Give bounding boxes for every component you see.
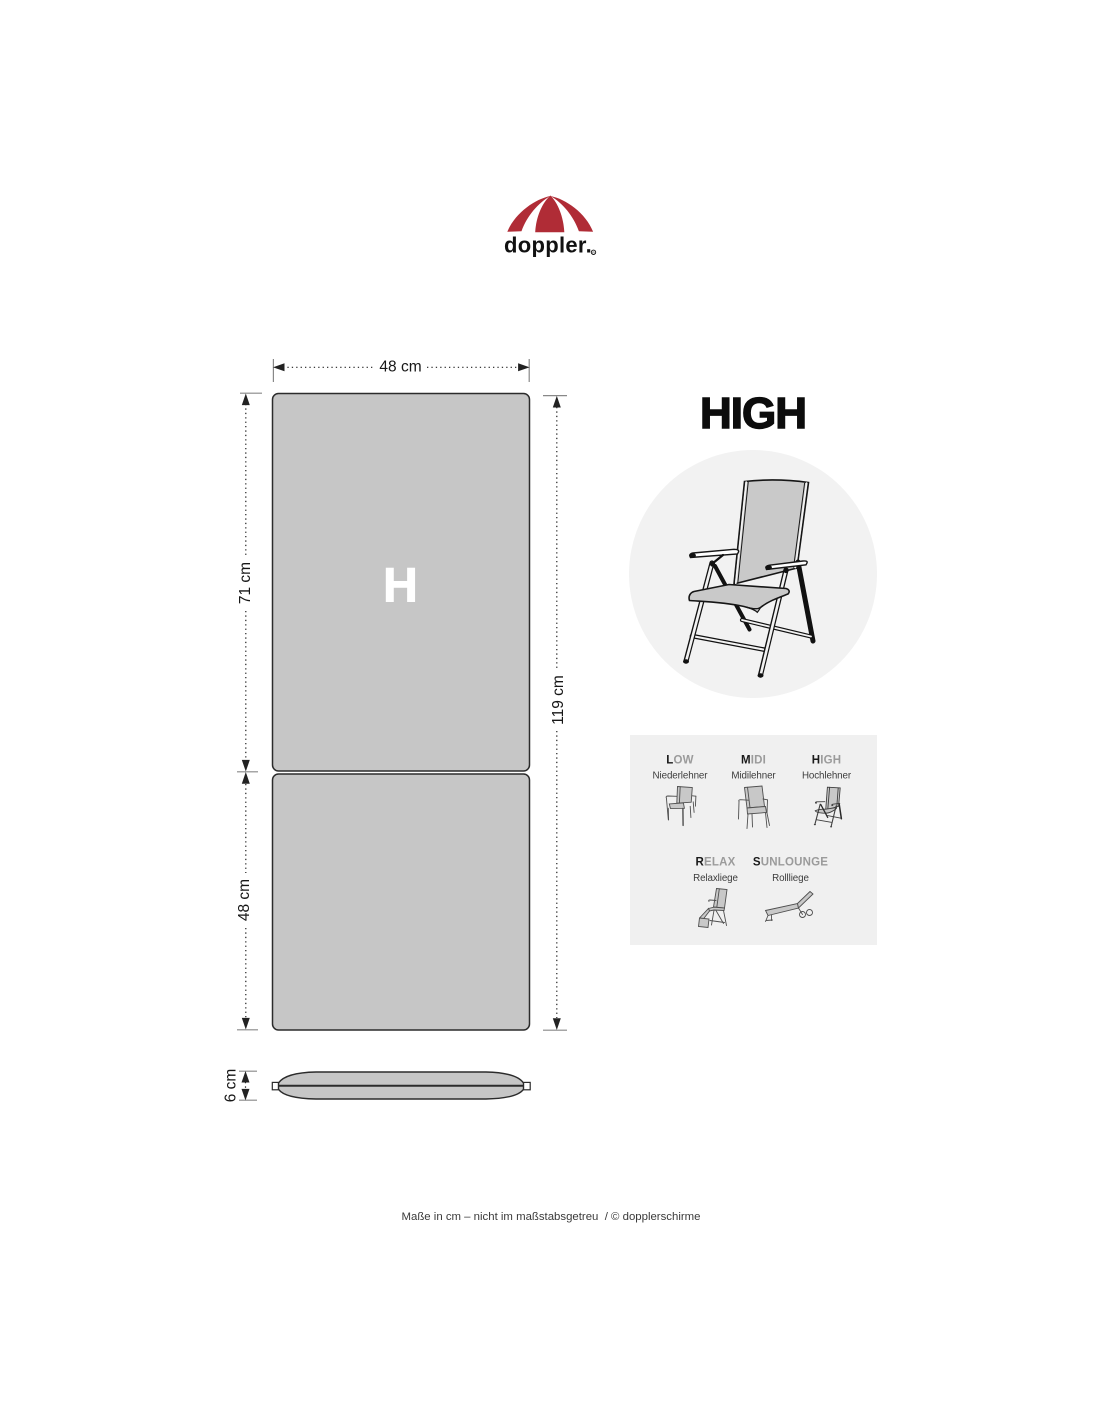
- svg-text:HIGH: HIGH: [700, 389, 806, 438]
- svg-text:H: H: [383, 560, 418, 613]
- svg-text:RELAX: RELAX: [696, 857, 736, 869]
- svg-text:Relaxliege: Relaxliege: [693, 873, 738, 884]
- svg-text:Midilehner: Midilehner: [731, 771, 776, 782]
- svg-text:119 cm: 119 cm: [550, 675, 567, 725]
- svg-text:MIDI: MIDI: [741, 755, 766, 767]
- svg-text:Rollliege: Rollliege: [772, 873, 809, 884]
- svg-text:6 cm: 6 cm: [223, 1069, 240, 1103]
- svg-text:doppler.: doppler.: [504, 233, 592, 258]
- svg-text:48 cm: 48 cm: [236, 879, 253, 921]
- svg-text:HIGH: HIGH: [812, 755, 842, 767]
- svg-text:SUNLOUNGE: SUNLOUNGE: [753, 857, 828, 869]
- svg-text:71 cm: 71 cm: [237, 562, 254, 604]
- svg-text:48 cm: 48 cm: [379, 359, 421, 376]
- svg-text:Hochlehner: Hochlehner: [802, 771, 852, 782]
- svg-text:LOW: LOW: [666, 755, 693, 767]
- svg-text:Niederlehner: Niederlehner: [653, 771, 709, 782]
- svg-text:Maße in cm – nicht im maßstabs: Maße in cm – nicht im maßstabsgetreu / ©…: [402, 1211, 701, 1223]
- svg-text:R: R: [592, 251, 595, 255]
